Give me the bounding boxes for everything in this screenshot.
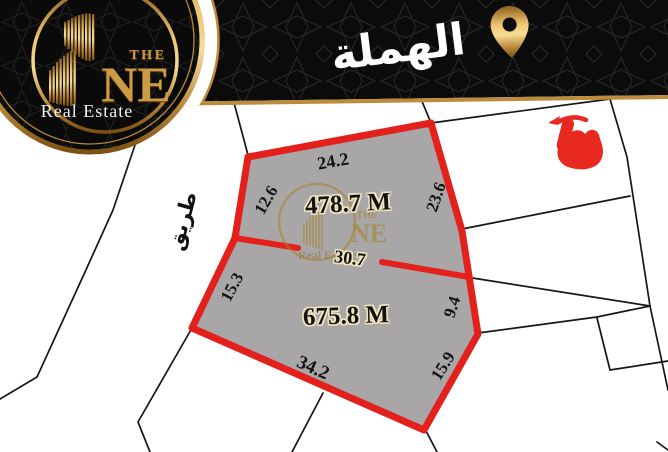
swipe-left-icon[interactable]	[548, 116, 603, 169]
lower-plot-area-label: 675.8 M	[303, 302, 390, 330]
brand-tagline: Real Estate	[41, 102, 133, 120]
upper-plot-area-label: 478.7 M	[304, 189, 391, 218]
listing-map-image: THE NE Real Estate الهملة طريق THE NE Re…	[0, 0, 668, 452]
watermark-word-one: NE	[351, 221, 387, 247]
divider-edge-length: 30.7	[333, 247, 366, 269]
